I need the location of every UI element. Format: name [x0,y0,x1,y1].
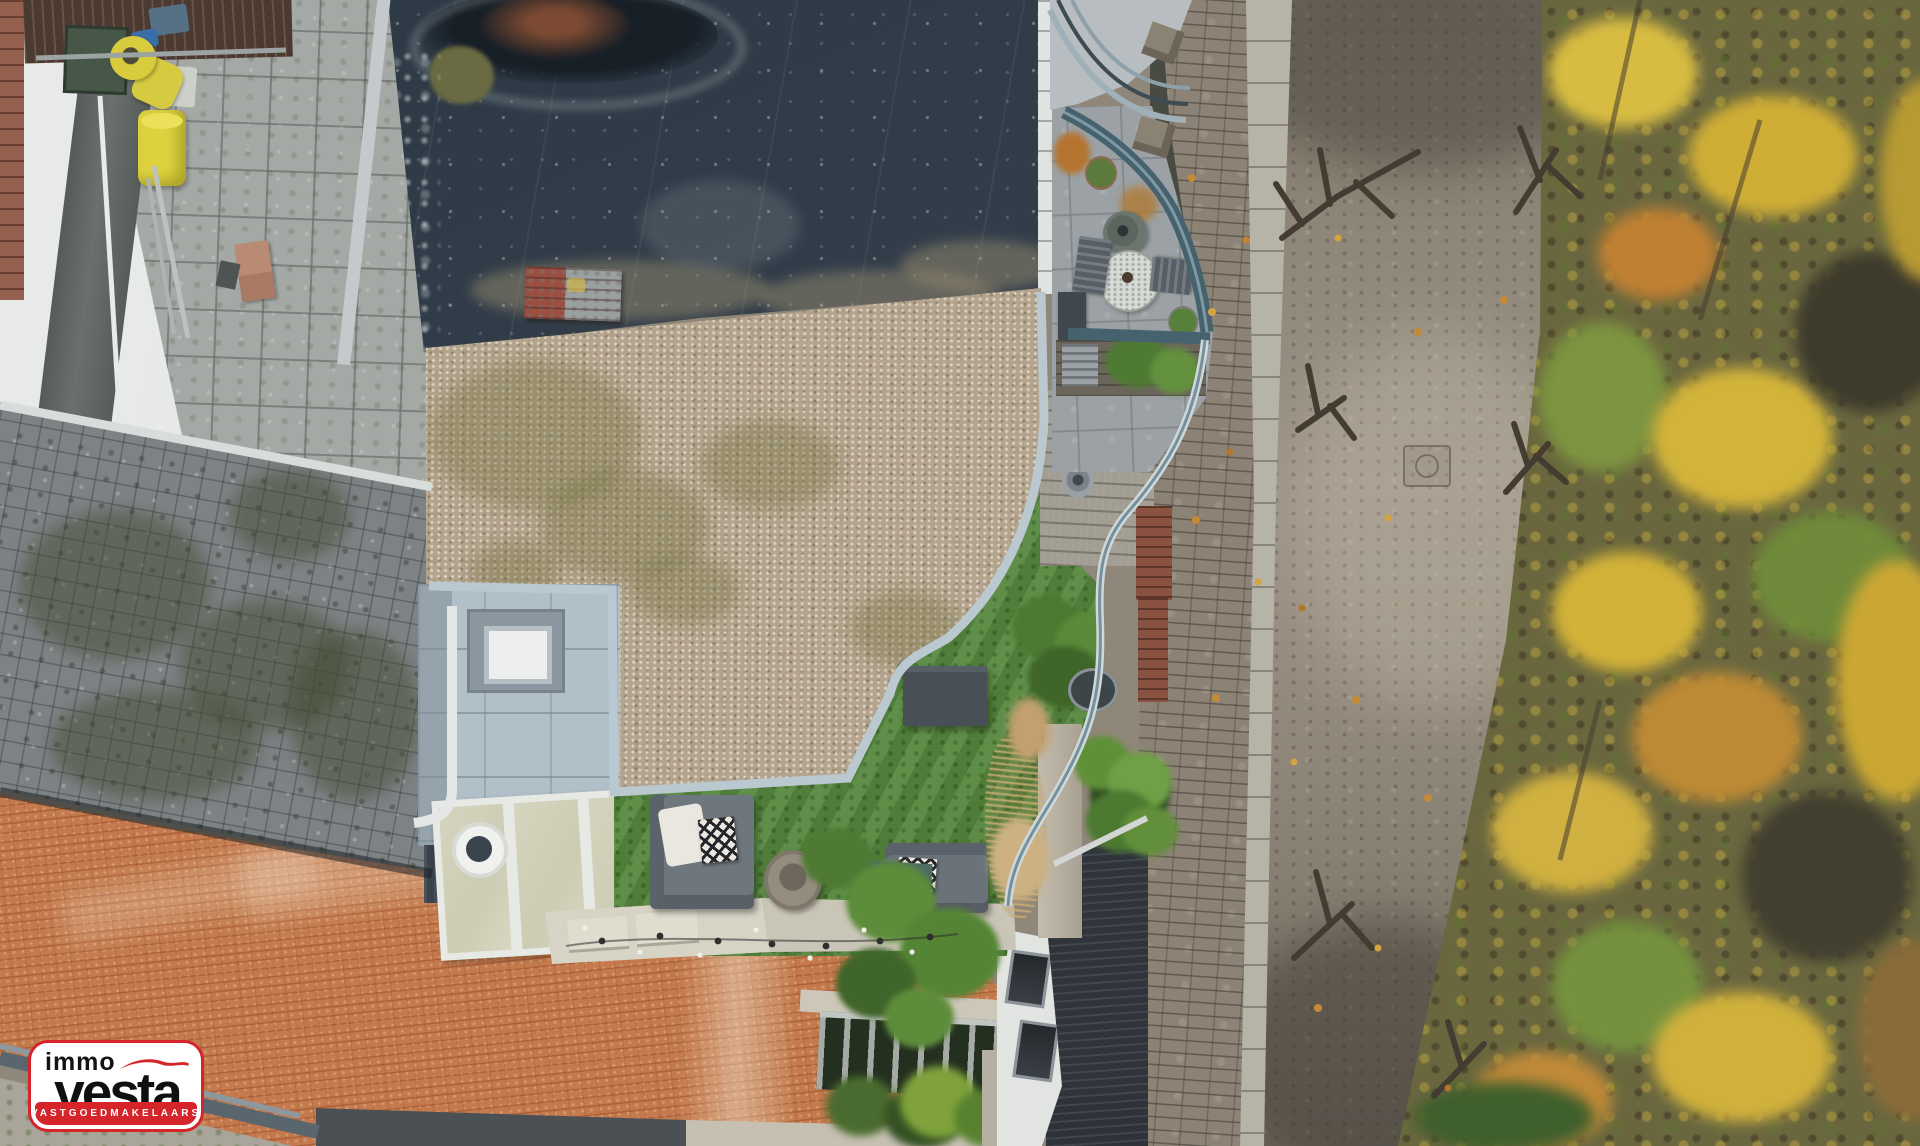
autumn-shrub [1054,132,1090,174]
brick-wall [1136,506,1172,600]
skylight-glass [484,626,552,684]
concrete-post [982,1050,998,1146]
table-item [1122,272,1133,283]
fern-bed [1122,806,1178,856]
yellow-funnel [110,36,156,80]
logo-tagline-bar: VASTGOEDMAKELAARS [35,1102,197,1125]
plant-pot [1068,668,1118,712]
storage-box [903,666,987,726]
balcony-window [1012,1019,1060,1082]
path-slab [567,916,629,950]
logo-tagline-text: VASTGOEDMAKELAARS [31,1108,201,1119]
watermark-logo: immo vesta VASTGOEDMAKELAARS [28,1040,204,1132]
patterned-cushion [698,816,738,864]
aerial-photo: immo vesta VASTGOEDMAKELAARS [0,0,1920,1146]
deck-shrub [1150,348,1200,394]
vent-pipe [466,836,492,862]
dried-grass [1008,698,1050,760]
yellow-bucket [138,110,186,186]
red-brick-wall-edge [0,0,24,300]
terrace-plant [884,988,954,1048]
brick-wall [1138,598,1168,702]
potted-plant [1085,156,1117,190]
balcony-window [1004,949,1051,1008]
dried-grass-bed [990,818,1048,900]
path-slab [635,910,699,944]
brick-chimney-remnant [524,266,622,321]
deck-chair [1062,344,1098,386]
terrace-chair [1149,257,1192,295]
